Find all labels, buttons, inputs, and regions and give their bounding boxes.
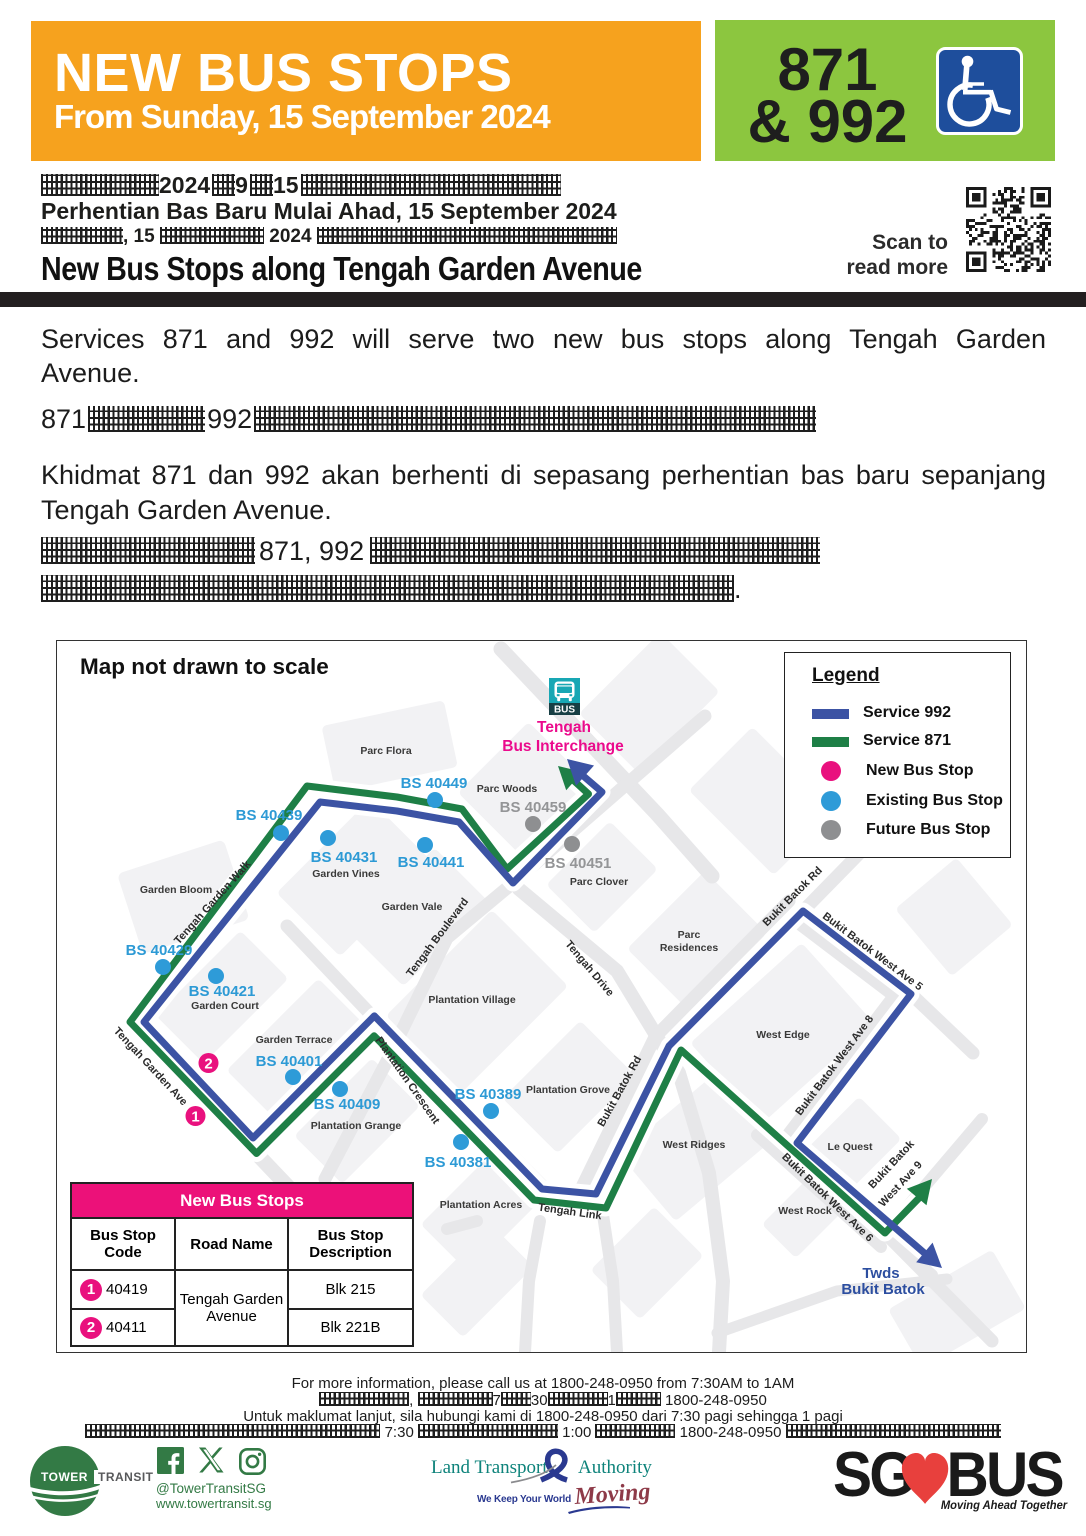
svg-text:Plantation Acres: Plantation Acres [440,1199,523,1211]
svg-text:Parc: Parc [678,929,701,941]
svg-text:BS 40409: BS 40409 [314,1096,381,1113]
svg-text:Parc Flora: Parc Flora [360,745,412,757]
svg-text:Garden Vines: Garden Vines [312,868,380,880]
svg-text:TOWER: TOWER [41,1470,88,1484]
svg-text:We Keep Your World: We Keep Your World [477,1494,571,1505]
svg-text:Parc Woods: Parc Woods [477,783,538,795]
svg-text:BS 40421: BS 40421 [189,983,256,1000]
svg-text:Plantation Grange: Plantation Grange [311,1120,402,1132]
svg-text:Bukit Batok: Bukit Batok [841,1281,925,1298]
svg-text:BS 40381: BS 40381 [425,1154,492,1171]
svg-text:Plantation Grove: Plantation Grove [526,1084,610,1096]
svg-text:BUS: BUS [554,705,575,716]
svg-text:Le Quest: Le Quest [828,1141,873,1153]
svg-text:TRANSIT: TRANSIT [98,1470,153,1484]
svg-text:Tengah: Tengah [537,719,591,736]
svg-text:Garden Vale: Garden Vale [382,901,443,913]
svg-text:BS 40451: BS 40451 [545,855,612,872]
svg-text:Authority: Authority [578,1457,652,1478]
svg-text:Garden Bloom: Garden Bloom [140,884,212,896]
svg-text:BS 40401: BS 40401 [256,1053,323,1070]
svg-text:BS 40459: BS 40459 [500,799,567,816]
svg-text:BS 40431: BS 40431 [311,849,378,866]
svg-text:Bus Interchange: Bus Interchange [502,738,624,755]
svg-text:BS 40439: BS 40439 [236,807,303,824]
svg-text:BS 40389: BS 40389 [455,1086,522,1103]
svg-text:Garden Court: Garden Court [191,1000,259,1012]
svg-text:Residences: Residences [660,942,719,954]
svg-text:2: 2 [204,1056,212,1073]
svg-text:Garden Terrace: Garden Terrace [256,1034,333,1046]
svg-text:Moving: Moving [573,1479,652,1510]
svg-text:BS 40441: BS 40441 [398,854,465,871]
svg-text:West Rock: West Rock [778,1205,832,1217]
svg-text:Parc Clover: Parc Clover [570,876,628,888]
svg-text:West Edge: West Edge [756,1029,810,1041]
svg-text:1: 1 [191,1109,199,1126]
svg-text:BS 40449: BS 40449 [401,775,468,792]
svg-text:BS 40429: BS 40429 [126,942,193,959]
svg-text:Twds: Twds [862,1265,899,1282]
svg-text:West Ridges: West Ridges [663,1139,726,1151]
svg-text:Plantation Village: Plantation Village [428,994,515,1006]
svg-text:Land Transport: Land Transport [431,1457,548,1478]
